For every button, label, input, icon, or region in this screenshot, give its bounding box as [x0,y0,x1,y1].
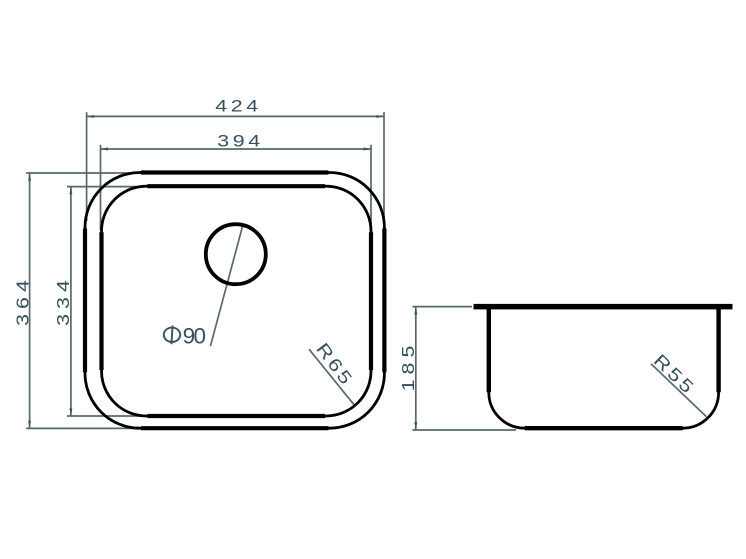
svg-text:185: 185 [399,341,419,392]
svg-text:424: 424 [215,97,261,115]
svg-text:90: 90 [183,323,206,348]
svg-text:364: 364 [13,275,33,326]
svg-text:394: 394 [217,133,263,151]
svg-text:334: 334 [53,275,73,326]
